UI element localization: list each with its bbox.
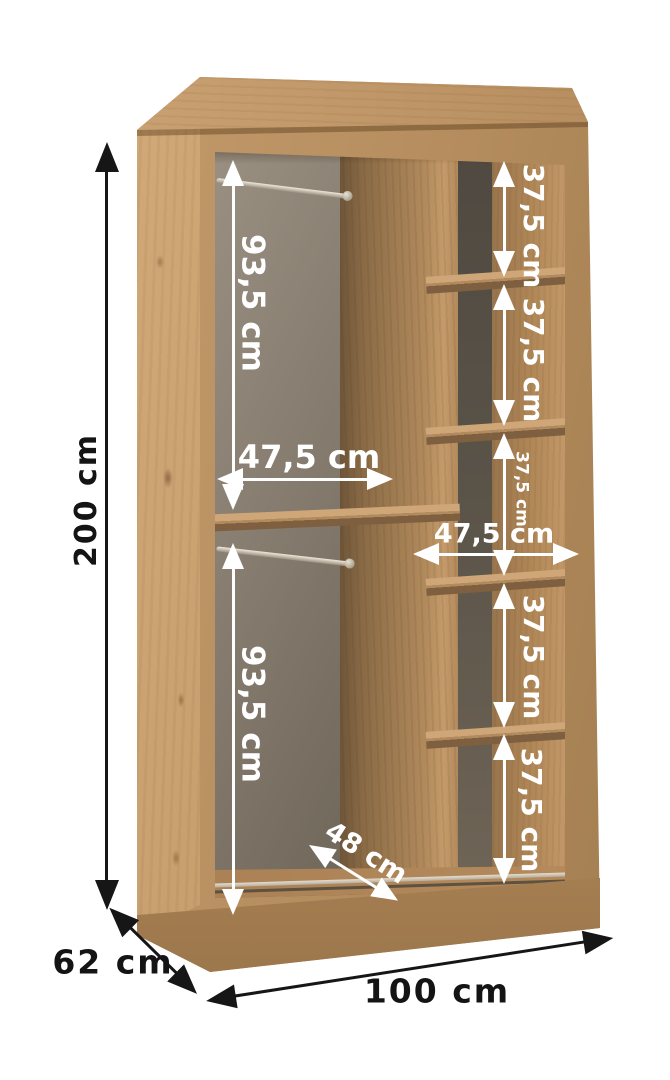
arrow-head-up-icon <box>493 734 515 760</box>
arrow-line <box>503 746 506 872</box>
left-top-section-label: 93,5 cm <box>237 234 268 372</box>
left-bottom-section-label: 93,5 cm <box>237 645 268 783</box>
arrow-head-up-icon <box>222 160 244 186</box>
right-section-2-arrow <box>491 284 517 426</box>
left-column-width-label: 47,5 cm <box>238 441 380 473</box>
right-column-width-label: 47,5 cm <box>434 521 554 548</box>
right-section-2-label: 37,5 cm <box>519 298 547 423</box>
right-section-4-label: 37,5 cm <box>519 595 547 720</box>
arrow-head-up-icon <box>95 142 119 172</box>
arrow-line <box>503 296 506 414</box>
right-section-3-label: 37,5 cm <box>513 451 530 527</box>
arrow-line <box>503 595 506 716</box>
arrow-head-up-icon <box>493 284 515 310</box>
width-dimension-label: 100 cm <box>364 975 510 1008</box>
arrow-head-left-icon <box>204 985 237 1013</box>
arrow-head-up-icon <box>222 543 244 569</box>
arrow-head-down-icon <box>493 858 515 884</box>
right-section-1-arrow <box>491 161 517 277</box>
arrow-head-up-icon <box>493 583 515 609</box>
arrow-head-down-icon <box>493 702 515 728</box>
arrow-head-down-icon <box>493 400 515 426</box>
right-section-5-arrow <box>491 734 517 884</box>
arrow-line <box>105 154 108 898</box>
right-section-5-label: 37,5 cm <box>517 748 545 873</box>
depth-dimension-label: 62 cm <box>52 946 173 979</box>
wardrobe-dimension-diagram: 200 cm 62 cm 100 cm 93,5 cm 93,5 cm 47,5… <box>0 0 670 1080</box>
arrow-head-up-icon <box>493 161 515 187</box>
arrow-head-down-icon <box>493 251 515 277</box>
arrow-head-right-icon <box>553 543 579 565</box>
arrow-head-right-icon <box>582 926 615 954</box>
height-dimension-label: 200 cm <box>72 433 102 567</box>
right-section-1-label: 37,5 cm <box>519 164 547 289</box>
right-section-4-arrow <box>491 583 517 728</box>
arrow-line <box>425 553 567 556</box>
arrow-head-down-icon <box>222 889 244 915</box>
arrow-line <box>229 478 381 481</box>
